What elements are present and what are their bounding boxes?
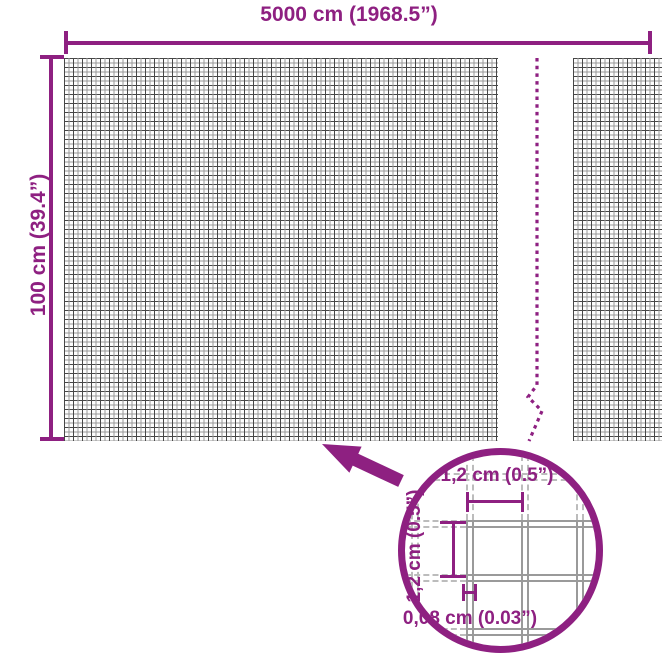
detail-circle bbox=[398, 448, 603, 653]
detail-wire-extension bbox=[405, 574, 466, 582]
width-dimension-tick-right bbox=[648, 31, 652, 54]
detail-arrow-icon bbox=[322, 444, 404, 487]
detail-mesh-wire-vertical bbox=[576, 520, 584, 646]
detail-wire-extension bbox=[466, 455, 474, 520]
width-dimension-line bbox=[66, 41, 652, 45]
mesh-panel-left bbox=[64, 58, 498, 441]
height-dimension-tick-top bbox=[40, 55, 64, 59]
detail-wire-extension bbox=[521, 455, 529, 520]
detail-wire-extension bbox=[405, 628, 466, 636]
height-dimension-tick-bottom bbox=[40, 437, 64, 441]
detail-mesh-wire-vertical bbox=[521, 520, 529, 646]
height-dimension-line bbox=[49, 57, 53, 441]
detail-mesh-wire-vertical bbox=[466, 520, 474, 646]
detail-wire-extension bbox=[411, 455, 419, 646]
width-dimension-label: 5000 cm (1968.5”) bbox=[149, 3, 549, 26]
break-line-icon bbox=[528, 58, 542, 441]
detail-wire-extension bbox=[405, 520, 466, 528]
width-dimension-tick-left bbox=[64, 31, 68, 54]
product-dimension-diagram: 5000 cm (1968.5”) 100 cm (39.4”) bbox=[0, 0, 666, 666]
detail-wire-extension bbox=[576, 455, 584, 520]
mesh-panel-right bbox=[573, 58, 662, 441]
detail-wire-extension bbox=[405, 473, 596, 481]
